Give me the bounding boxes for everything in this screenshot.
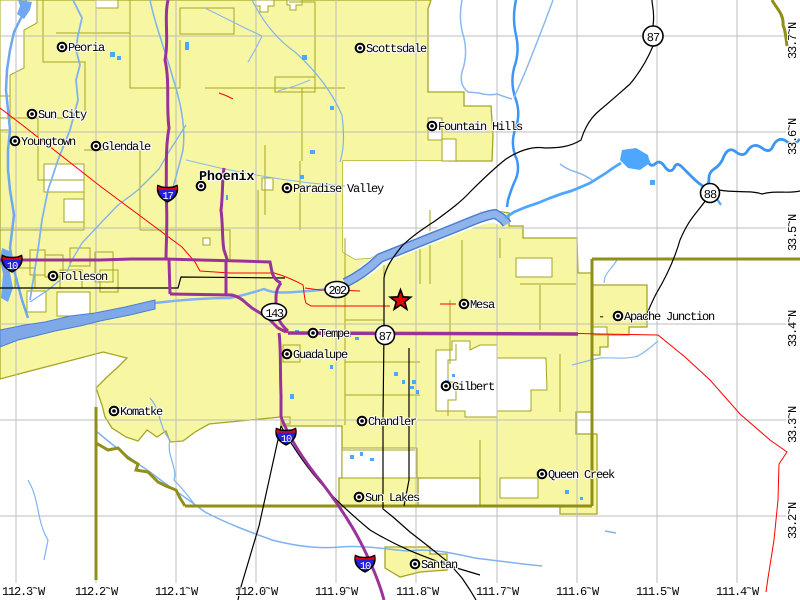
svg-text:Glendale: Glendale: [102, 140, 151, 154]
svg-text:10: 10: [360, 561, 371, 573]
svg-text:33.5~N: 33.5~N: [783, 214, 800, 251]
svg-text:Gilbert: Gilbert: [452, 380, 494, 394]
svg-text:33.6~N: 33.6~N: [783, 118, 800, 155]
svg-text:10: 10: [7, 261, 18, 273]
svg-text:111.8~W: 111.8~W: [396, 582, 440, 599]
svg-text:143: 143: [265, 307, 283, 321]
svg-text:88: 88: [704, 188, 717, 202]
svg-text:Mesa: Mesa: [470, 298, 495, 312]
svg-text:Tolleson: Tolleson: [59, 270, 108, 284]
svg-text:Guadalupe: Guadalupe: [293, 348, 348, 362]
svg-text:Sun City: Sun City: [38, 108, 87, 122]
svg-text:17: 17: [162, 191, 173, 203]
svg-text:87: 87: [647, 31, 660, 45]
svg-text:Peoria: Peoria: [68, 41, 105, 55]
svg-text:Chandler: Chandler: [368, 415, 417, 429]
svg-text:Scottsdale: Scottsdale: [366, 42, 427, 56]
svg-text:Fountain Hills: Fountain Hills: [438, 120, 523, 134]
svg-text:Phoenix: Phoenix: [199, 170, 254, 185]
svg-text:87: 87: [379, 330, 392, 344]
svg-text:111.6~W: 111.6~W: [556, 582, 600, 599]
svg-text:Youngtown: Youngtown: [21, 135, 76, 149]
svg-text:Tempe: Tempe: [319, 327, 350, 341]
svg-text:202: 202: [328, 284, 346, 298]
svg-text:112.1~W: 112.1~W: [155, 582, 199, 599]
svg-text:33.7~N: 33.7~N: [783, 22, 800, 59]
svg-text:Komatke: Komatke: [120, 405, 163, 419]
svg-text:111.9~W: 111.9~W: [315, 582, 359, 599]
svg-text:111.5~W: 111.5~W: [636, 582, 680, 599]
svg-text:112.0~W: 112.0~W: [235, 582, 279, 599]
svg-text:33.4~N: 33.4~N: [783, 310, 800, 347]
svg-text:Sun Lakes: Sun Lakes: [365, 491, 420, 505]
svg-text:10: 10: [281, 434, 292, 446]
svg-text:-: -: [598, 310, 604, 324]
svg-text:Queen Creek: Queen Creek: [548, 468, 615, 482]
svg-text:111.7~W: 111.7~W: [476, 582, 520, 599]
svg-text:111.4~W: 111.4~W: [716, 582, 760, 599]
svg-text:Paradise Valley: Paradise Valley: [293, 182, 384, 196]
svg-text:33.2~N: 33.2~N: [783, 502, 800, 539]
svg-text:33.3~N: 33.3~N: [783, 406, 800, 443]
svg-text:Santan: Santan: [421, 558, 458, 572]
svg-text:112.3~W: 112.3~W: [2, 582, 46, 599]
svg-text:Apache Junction: Apache Junction: [624, 310, 715, 324]
svg-text:112.2~W: 112.2~W: [75, 582, 119, 599]
